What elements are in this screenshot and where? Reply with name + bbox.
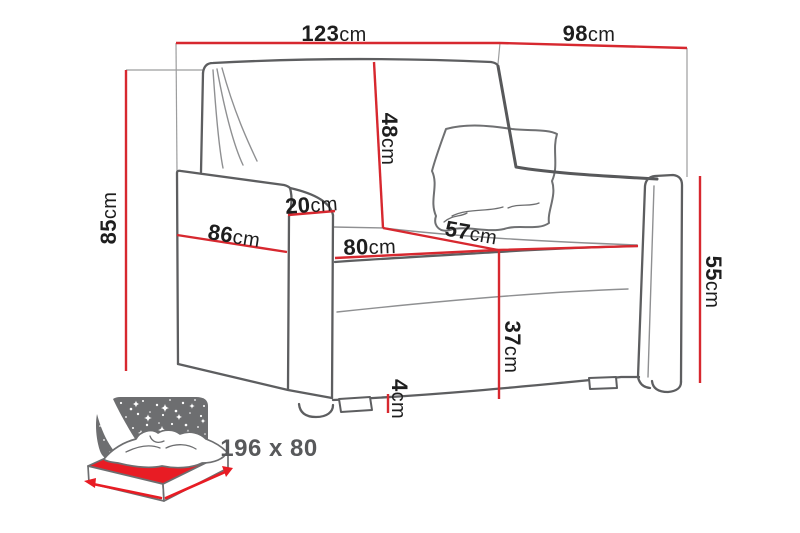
cushion-pillow xyxy=(432,126,557,231)
right-armrest-outline xyxy=(638,175,682,382)
furniture-dimension-diagram: 123cm 98cm 85cm 48cm 20cm 86cm 80cm 57cm… xyxy=(0,0,800,533)
dim-value: 80 xyxy=(343,234,369,260)
dim-unit: cm xyxy=(377,138,399,165)
dim-value: 85 xyxy=(96,219,121,244)
pillow-outline xyxy=(432,126,557,231)
dim-label-armrest-height: 55cm xyxy=(701,256,726,309)
fold-out-bed xyxy=(88,430,228,501)
dim-value: 48 xyxy=(377,113,402,138)
left-armrest-front-right-edge xyxy=(332,215,333,398)
dim-unit: cm xyxy=(99,192,121,219)
bed-width-arrowhead xyxy=(84,478,96,488)
sofa-foot xyxy=(339,397,372,412)
dim-unit: cm xyxy=(339,24,366,46)
sleeping-area-label: 196 x 80 xyxy=(220,435,317,462)
sofa-foot xyxy=(299,404,333,417)
dim-label-total-height: 85cm xyxy=(96,192,121,245)
dim-unit: cm xyxy=(701,281,723,308)
base-and-feet xyxy=(299,377,681,417)
projection-line-front-left xyxy=(176,43,177,172)
dim-unit: cm xyxy=(231,226,262,252)
dim-unit: cm xyxy=(588,24,615,46)
dim-label-total-width: 123cm xyxy=(301,21,366,46)
sofa-foot xyxy=(589,377,617,389)
dim-label-side-depth: 86cm xyxy=(206,219,262,252)
right-armrest-bottom-curve xyxy=(638,377,650,388)
seat-cushion-crease xyxy=(337,289,628,312)
dim-unit: cm xyxy=(468,223,499,249)
dim-value: 20 xyxy=(284,192,311,219)
projection-line-back-right xyxy=(498,43,500,64)
dim-label-seat-width: 80cm xyxy=(343,233,397,260)
dim-label-leg-height: 4cm xyxy=(387,379,412,419)
dim-unit: cm xyxy=(387,392,409,419)
dimension-labels: 123cm 98cm 85cm 48cm 20cm 86cm 80cm 57cm… xyxy=(96,21,726,419)
sofa-dimensions-drawing: 123cm 98cm 85cm 48cm 20cm 86cm 80cm 57cm… xyxy=(0,0,800,533)
right-armrest xyxy=(638,175,682,388)
left-armrest-front-left-edge xyxy=(288,216,289,389)
dim-value: 123 xyxy=(301,21,339,46)
blanket xyxy=(104,430,227,468)
left-armrest-side-face xyxy=(177,171,290,364)
left-armrest-bottom-edge xyxy=(178,364,332,398)
sofa-bed-night-icon xyxy=(84,397,233,501)
dim-label-armrest-width: 20cm xyxy=(284,190,338,219)
dim-unit: cm xyxy=(500,346,522,373)
dim-unit: cm xyxy=(368,236,396,259)
right-armrest-inner-line xyxy=(648,186,654,377)
sofa-foot xyxy=(652,381,681,392)
backrest-fold-line xyxy=(213,70,223,168)
dim-value: 37 xyxy=(500,321,525,346)
backrest-top-edge xyxy=(203,59,498,73)
dim-label-seat-height: 37cm xyxy=(500,321,525,374)
dim-value: 86 xyxy=(206,219,235,248)
dim-value: 55 xyxy=(701,256,726,281)
dim-value: 98 xyxy=(563,21,588,46)
backrest-left-edge xyxy=(201,73,203,172)
dim-value: 4 xyxy=(387,379,412,392)
dim-label-backrest-height: 48cm xyxy=(377,113,402,166)
dim-label-total-depth: 98cm xyxy=(563,21,616,46)
dim-unit: cm xyxy=(310,193,339,217)
